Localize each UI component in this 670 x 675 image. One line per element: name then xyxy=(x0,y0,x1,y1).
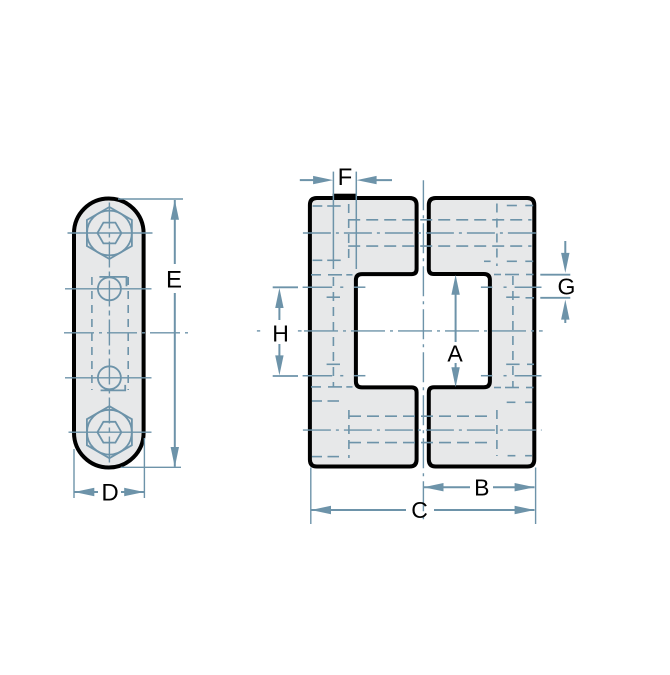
svg-text:F: F xyxy=(338,164,353,191)
svg-text:D: D xyxy=(101,480,118,507)
svg-text:B: B xyxy=(474,474,489,500)
svg-text:A: A xyxy=(447,341,463,367)
svg-text:E: E xyxy=(166,266,182,293)
svg-text:C: C xyxy=(411,497,428,523)
svg-text:H: H xyxy=(272,321,289,347)
svg-text:G: G xyxy=(558,274,576,300)
